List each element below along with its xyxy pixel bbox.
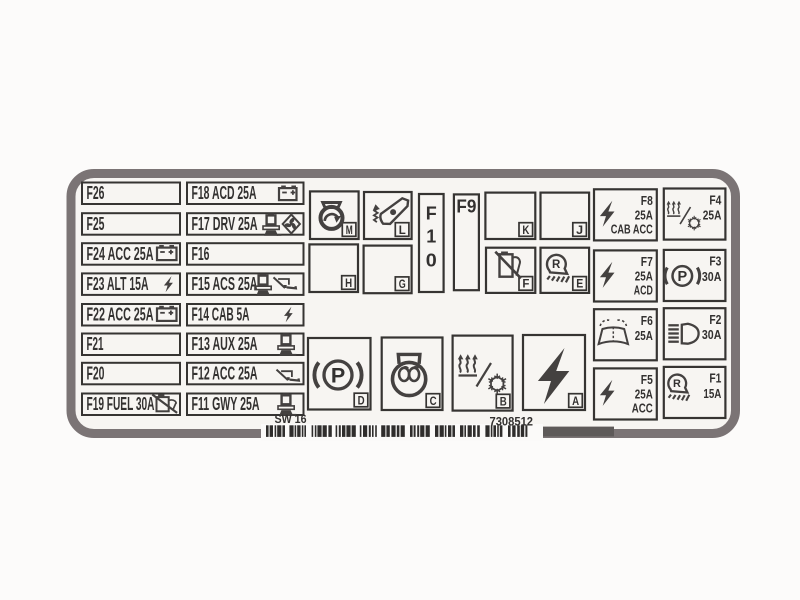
svg-text:F23 ALT 15A: F23 ALT 15A [87, 274, 149, 294]
svg-text:30A: 30A [702, 327, 722, 342]
svg-text:P: P [677, 269, 687, 285]
svg-text:F13 AUX 25A: F13 AUX 25A [192, 334, 258, 354]
svg-text:F18 ACD 25A: F18 ACD 25A [192, 183, 257, 203]
svg-text:25A: 25A [635, 207, 653, 222]
svg-text:15A: 15A [703, 386, 721, 401]
svg-text:A: A [572, 396, 579, 408]
svg-text:30A: 30A [702, 269, 722, 284]
svg-text:F: F [522, 279, 529, 291]
svg-text:D: D [358, 395, 365, 407]
svg-text:F20: F20 [87, 364, 105, 384]
svg-text:F26: F26 [87, 183, 105, 203]
svg-text:F15 ACS 25A: F15 ACS 25A [192, 274, 258, 294]
svg-text:P: P [331, 364, 345, 388]
svg-text:ACD: ACD [634, 283, 653, 298]
svg-text:F11 GWY 25A: F11 GWY 25A [192, 394, 260, 414]
svg-text:J: J [576, 225, 583, 237]
svg-text:CAB ACC: CAB ACC [611, 222, 653, 237]
svg-text:F9: F9 [456, 197, 476, 217]
svg-text:R: R [673, 378, 681, 390]
svg-text:F8: F8 [641, 193, 653, 208]
svg-text:25A: 25A [703, 208, 722, 223]
svg-text:0: 0 [426, 251, 437, 271]
svg-text:G: G [399, 279, 406, 291]
svg-text:F3: F3 [709, 254, 721, 269]
svg-text:ACC: ACC [632, 401, 653, 416]
svg-text:F2: F2 [709, 312, 721, 327]
svg-text:F21: F21 [87, 334, 104, 354]
svg-text:F1: F1 [709, 371, 721, 386]
svg-text:M: M [346, 225, 353, 237]
svg-text:F22 ACC 25A: F22 ACC 25A [87, 305, 154, 325]
svg-text:K: K [522, 225, 530, 237]
svg-text:E: E [576, 279, 583, 291]
svg-text:F4: F4 [709, 192, 722, 207]
svg-text:F19 FUEL 30A: F19 FUEL 30A [87, 394, 155, 414]
svg-text:25A: 25A [635, 386, 653, 401]
svg-text:F14 CAB 5A: F14 CAB 5A [192, 305, 250, 325]
svg-text:F17 DRV 25A: F17 DRV 25A [192, 214, 258, 234]
svg-text:1: 1 [426, 227, 436, 247]
svg-text:B: B [500, 396, 507, 408]
svg-text:L: L [399, 225, 406, 237]
svg-text:F24 ACC 25A: F24 ACC 25A [87, 244, 154, 264]
svg-text:F5: F5 [641, 372, 653, 387]
svg-text:C: C [430, 396, 437, 408]
svg-text:F6: F6 [641, 313, 653, 328]
svg-text:F25: F25 [87, 214, 105, 234]
svg-text:25A: 25A [635, 328, 653, 343]
svg-text:F12 ACC 25A: F12 ACC 25A [192, 364, 258, 384]
svg-text:25A: 25A [635, 268, 653, 283]
svg-text:F7: F7 [641, 254, 653, 269]
svg-text:R: R [552, 259, 561, 271]
svg-text:H: H [345, 278, 352, 290]
svg-text:SW 16: SW 16 [275, 414, 307, 426]
svg-text:F: F [426, 204, 437, 224]
svg-text:F16: F16 [192, 244, 210, 264]
